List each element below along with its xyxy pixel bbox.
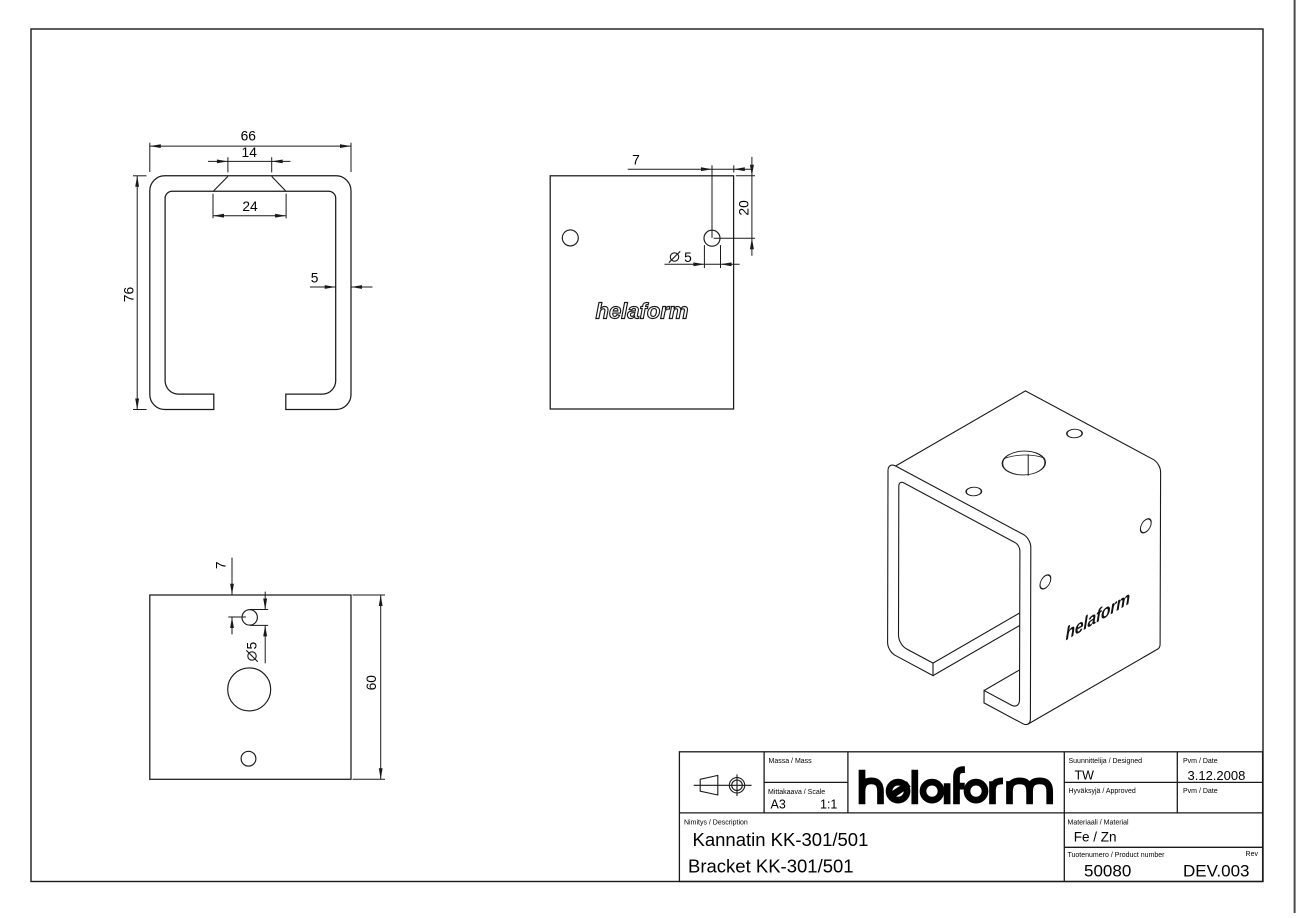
svg-text:Tuotenumero / Product number: Tuotenumero / Product number: [1068, 852, 1166, 859]
svg-text:14: 14: [242, 145, 258, 160]
svg-text:7: 7: [632, 153, 640, 168]
svg-text:Bracket KK-301/501: Bracket KK-301/501: [688, 856, 854, 877]
svg-text:Fe / Zn: Fe / Zn: [1074, 830, 1117, 845]
svg-text:TW: TW: [1075, 769, 1095, 783]
svg-text:Nimitys / Description: Nimitys / Description: [684, 820, 748, 827]
svg-text:76: 76: [122, 287, 137, 303]
svg-text:66: 66: [241, 129, 257, 144]
svg-text:3.12.2008: 3.12.2008: [1188, 768, 1246, 783]
svg-text:helaform: helaform: [596, 299, 689, 324]
svg-text:5: 5: [684, 250, 692, 265]
svg-text:Suunnittelija / Designed: Suunnittelija / Designed: [1069, 758, 1143, 765]
svg-text:5: 5: [244, 642, 259, 650]
svg-text:Pvm / Date: Pvm / Date: [1183, 758, 1218, 765]
svg-text:A3: A3: [771, 798, 786, 812]
svg-text:Hyväksyjä / Approved: Hyväksyjä / Approved: [1069, 788, 1136, 795]
svg-text:1:1: 1:1: [820, 798, 837, 812]
svg-text:Pvm / Date: Pvm / Date: [1183, 788, 1218, 795]
svg-text:20: 20: [737, 200, 752, 216]
svg-text:Massa / Mass: Massa / Mass: [769, 758, 813, 765]
svg-text:50080: 50080: [1084, 862, 1131, 881]
svg-text:Mittakaava / Scale: Mittakaava / Scale: [768, 789, 825, 796]
svg-text:24: 24: [242, 199, 258, 214]
svg-text:Kannatin KK-301/501: Kannatin KK-301/501: [693, 829, 869, 850]
svg-text:5: 5: [311, 271, 319, 286]
svg-text:7: 7: [214, 561, 229, 569]
svg-text:DEV.003: DEV.003: [1183, 862, 1249, 881]
svg-text:60: 60: [364, 675, 379, 691]
svg-text:Rev: Rev: [1246, 851, 1259, 858]
svg-text:Materiaali / Material: Materiaali / Material: [1068, 820, 1130, 827]
